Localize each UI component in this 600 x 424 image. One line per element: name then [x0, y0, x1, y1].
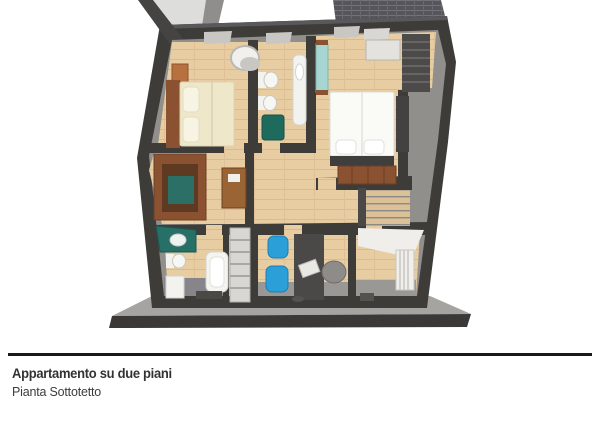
desk-nook: [366, 40, 400, 60]
blue-chair: [268, 236, 288, 258]
laundry-basket: [262, 115, 284, 140]
bed-headboard: [166, 80, 180, 148]
bath-mat: [196, 291, 222, 299]
window-recess: [266, 32, 292, 44]
sink: [170, 234, 186, 246]
window-recess: [364, 28, 390, 40]
window-recess: [334, 26, 360, 38]
washer: [166, 276, 184, 298]
armchair-shadow: [240, 57, 260, 71]
floor-plan-rendering: [0, 0, 600, 424]
page: Appartamento su due piani Pianta Sottote…: [0, 0, 600, 424]
tall-cabinet: [316, 44, 328, 92]
blue-chair: [266, 266, 288, 292]
bed-headboard: [330, 156, 394, 166]
bidet: [264, 96, 277, 111]
window-recess: [204, 31, 232, 44]
closet-stack: [230, 228, 250, 302]
staircase: [358, 188, 410, 226]
caption-subtitle: Pianta Sottotetto: [12, 384, 101, 399]
toilet: [173, 254, 186, 268]
paper: [228, 174, 240, 182]
pillow: [183, 117, 199, 142]
pillow: [336, 140, 356, 154]
pillow: [364, 140, 384, 154]
nightstand: [172, 64, 188, 82]
radiator: [396, 250, 414, 290]
sink: [296, 64, 304, 80]
dresser: [338, 166, 396, 184]
caption-title: Appartamento su due piani: [12, 366, 172, 381]
floor-item: [360, 293, 374, 301]
office-chair: [322, 261, 346, 283]
floor-drain: [292, 296, 304, 302]
toilet: [264, 72, 278, 88]
pillow: [183, 87, 199, 112]
radiator-dark: [396, 96, 409, 152]
desk-mat-teal: [168, 176, 194, 204]
caption-rule: [8, 353, 592, 356]
